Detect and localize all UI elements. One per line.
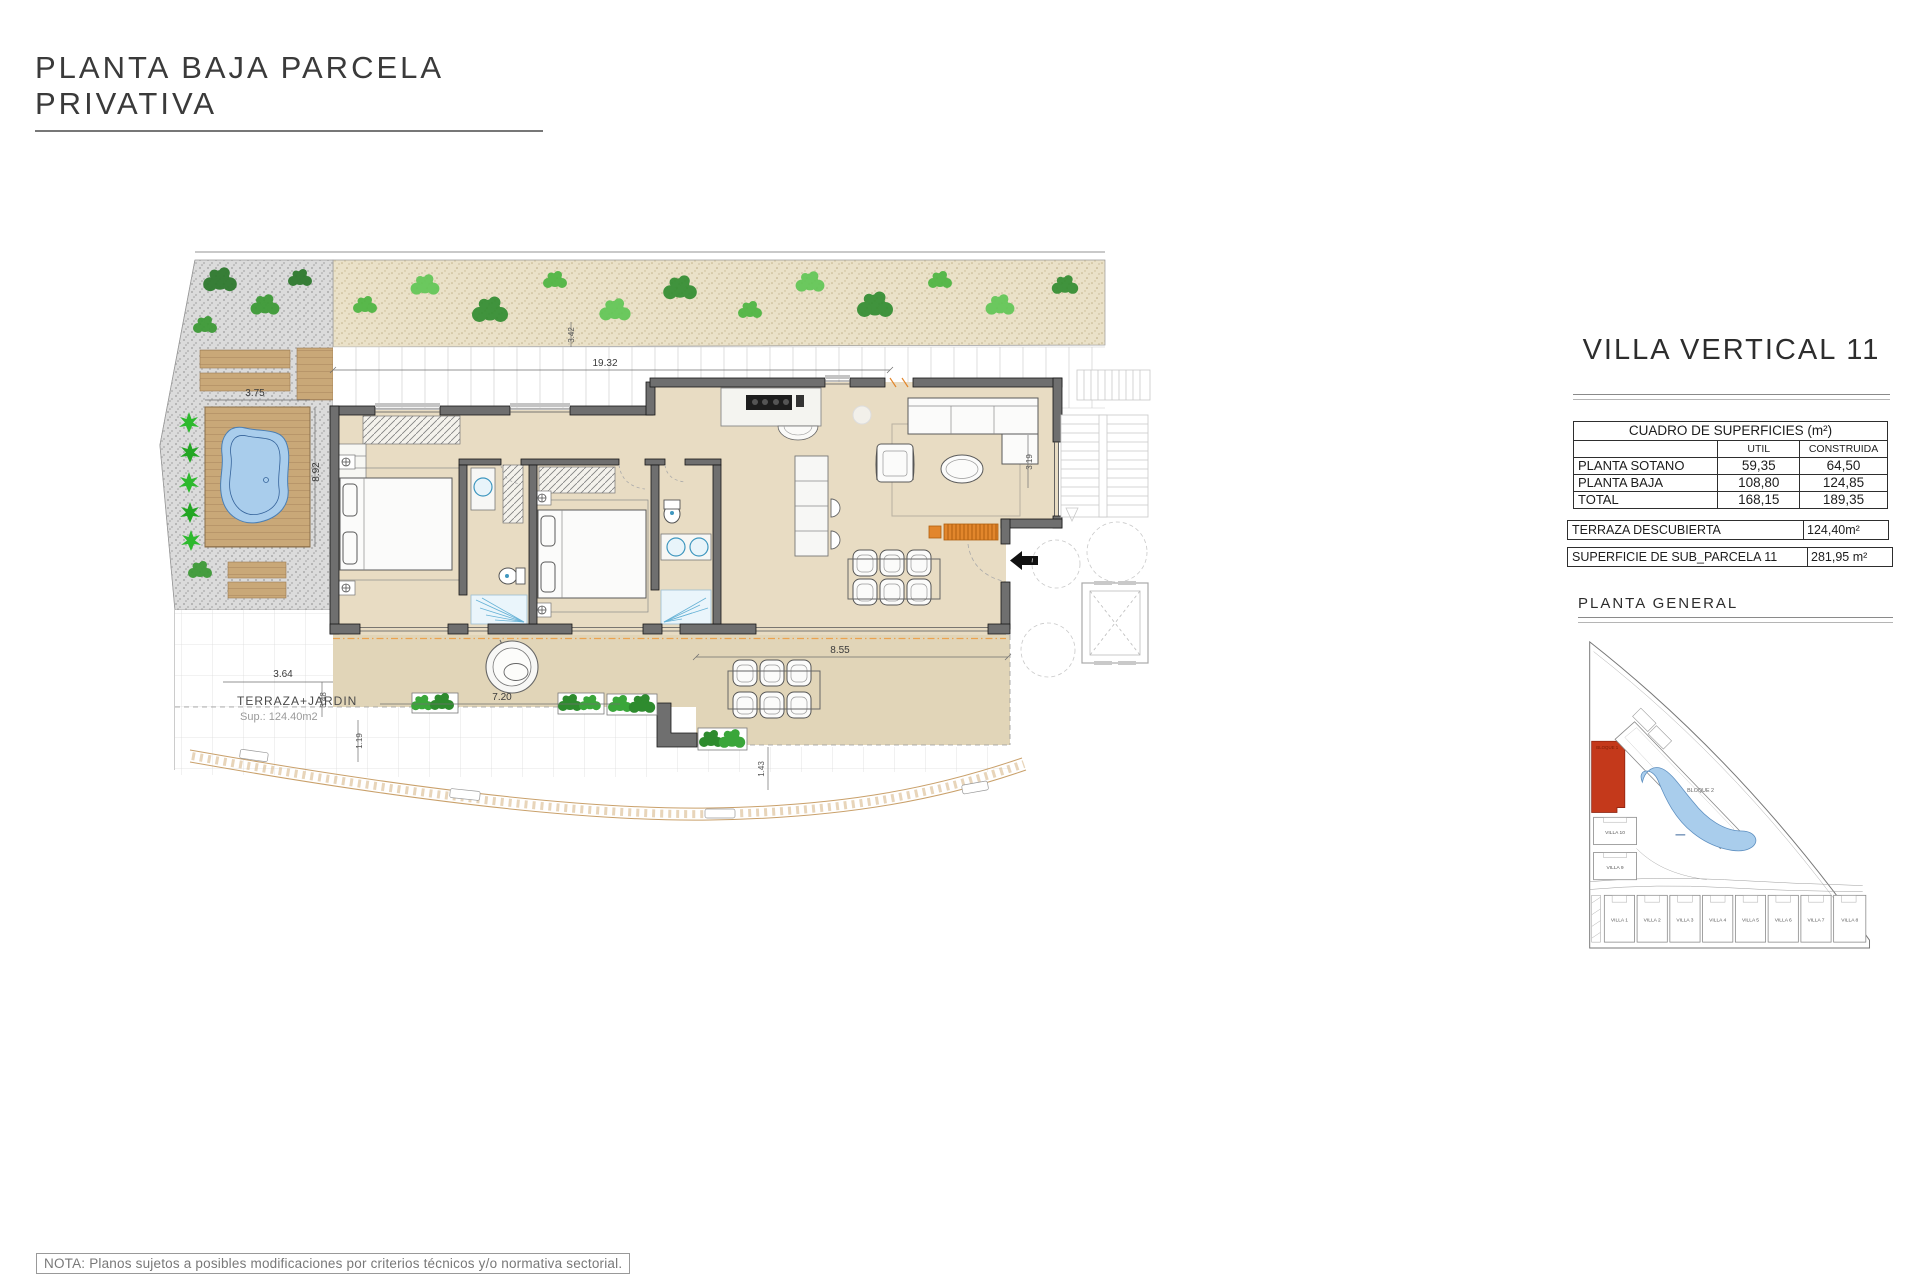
sink-2a-icon (667, 538, 685, 556)
surface-table-title: CUADRO DE SUPERFICIES (m²) (1574, 422, 1888, 441)
table-row: TOTAL 168,15 189,35 (1574, 492, 1888, 509)
row-util: 108,80 (1718, 475, 1800, 492)
bloque-2-label: BLOQUE 2 (1687, 788, 1714, 794)
site-bloque-1: BLOQUE 1 (1592, 741, 1625, 812)
site-villa-9: VILLA 9 (1594, 852, 1637, 879)
terraza-value: 124,40m² (1804, 520, 1889, 540)
villa-title-underline (1573, 394, 1890, 400)
site-plan-underline (1578, 617, 1893, 623)
site-plan-title: PLANTA GENERAL (1578, 595, 1738, 612)
villa-label: VILLA 2 (1644, 918, 1661, 924)
dimension-label: 3.19 (1025, 454, 1034, 470)
tv-bench (944, 524, 998, 540)
dimension-label: 8.92 (311, 462, 322, 482)
dimension-label: 3.64 (273, 669, 293, 680)
entrance-arrow-icon (1010, 551, 1038, 570)
footer-note: NOTA: Planos sujetos a posibles modifica… (36, 1253, 630, 1274)
area-sublabel: Sup.: 124.40m2 (240, 711, 318, 723)
row-construida: 124,85 (1800, 475, 1888, 492)
dimension-label: 19.32 (592, 358, 617, 369)
garden-strip (333, 260, 1105, 347)
shower-2 (661, 590, 711, 624)
page-title: PLANTA BAJA PARCELA PRIVATIVA (35, 50, 543, 132)
villa-9-label: VILLA 9 (1607, 865, 1624, 871)
villa-title: VILLA VERTICAL 11 (1573, 334, 1890, 367)
terraza-row: TERRAZA DESCUBIERTA 124,40m² (1567, 520, 1889, 540)
dimension-label: 3.75 (245, 388, 265, 399)
villa-label: VILLA 8 (1841, 918, 1858, 924)
site-bottom-villas: VILLA 1 VILLA 2 VILLA 3 VILLA 4 VILLA 5 … (1592, 895, 1866, 942)
col-header-util: UTIL (1718, 441, 1800, 458)
villa-label: VILLA 3 (1676, 918, 1693, 924)
row-label: TOTAL (1574, 492, 1718, 509)
nightstand-1a (337, 455, 355, 469)
col-header-construida: CONSTRUIDA (1800, 441, 1888, 458)
pool (221, 427, 289, 523)
bloque-1-label: BLOQUE 1 (1596, 745, 1618, 750)
floor-plan: 19.32 3.42 3.75 8.92 3.64 3.48 1.19 7.20… (150, 210, 1400, 830)
table-row: PLANTA BAJA 108,80 124,85 (1574, 475, 1888, 492)
dimension-label: 7.20 (492, 692, 512, 703)
terraza-label: TERRAZA DESCUBIERTA (1567, 520, 1804, 540)
dimension-label: 1.43 (757, 761, 766, 777)
house (330, 375, 1062, 635)
row-label: PLANTA SOTANO (1574, 458, 1718, 475)
pendant-light-icon (853, 406, 871, 424)
surface-table: CUADRO DE SUPERFICIES (m²) UTIL CONSTRUI… (1573, 421, 1888, 509)
villa-label: VILLA 1 (1611, 918, 1628, 924)
row-util: 59,35 (1718, 458, 1800, 475)
hanging-chair (486, 640, 538, 693)
sofa (908, 398, 1038, 434)
row-label: PLANTA BAJA (1574, 475, 1718, 492)
dimension-label: 3.42 (567, 327, 576, 343)
sink-icon (474, 478, 492, 496)
site-villa-10: VILLA 10 (1594, 817, 1637, 844)
floor-plan-svg: 19.32 3.42 3.75 8.92 3.64 3.48 1.19 7.20… (150, 210, 1400, 830)
sink-2b-icon (690, 538, 708, 556)
parcela-value: 281,95 m² (1808, 547, 1893, 567)
villa-label: VILLA 6 (1775, 918, 1792, 924)
row-construida: 64,50 (1800, 458, 1888, 475)
dimension-label: 1.19 (355, 733, 364, 749)
parcela-label: SUPERFICIE DE SUB_PARCELA 11 (1567, 547, 1808, 567)
villa-label: VILLA 7 (1807, 918, 1824, 924)
parcela-row: SUPERFICIE DE SUB_PARCELA 11 281,95 m² (1567, 547, 1893, 567)
table-row: PLANTA SOTANO 59,35 64,50 (1574, 458, 1888, 475)
row-construida: 189,35 (1800, 492, 1888, 509)
nightstand-1b (337, 581, 355, 595)
elevator (1082, 581, 1148, 665)
row-util: 168,15 (1718, 492, 1800, 509)
villa-label: VILLA 5 (1742, 918, 1759, 924)
area-label: TERRAZA+JARDIN (237, 694, 357, 708)
dimension-label: 8.55 (830, 645, 850, 656)
villa-label: VILLA 4 (1709, 918, 1726, 924)
villa-10-label: VILLA 10 (1605, 830, 1625, 836)
site-map: BLOQUE 1 BLOQUE 2 VILLA 10 VILLA 9 VILLA… (1578, 626, 1890, 956)
